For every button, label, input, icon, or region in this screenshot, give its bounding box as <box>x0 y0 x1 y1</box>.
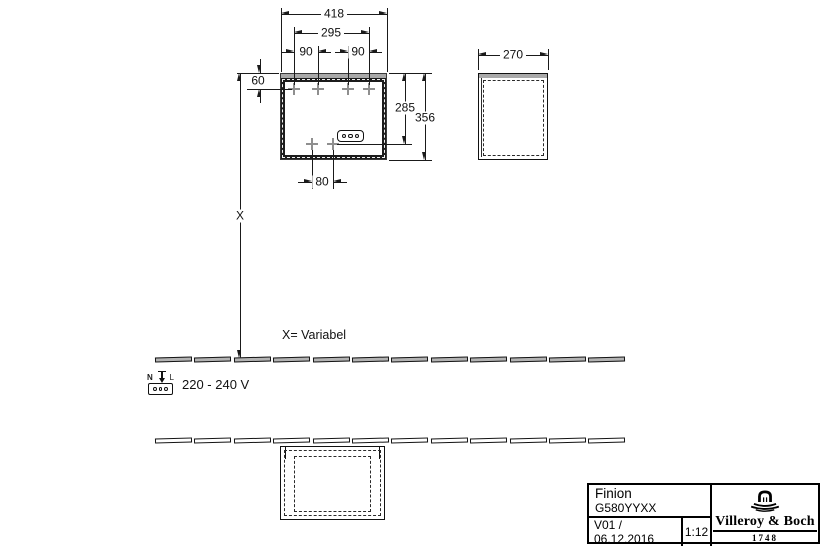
variable-note: X= Variabel <box>282 328 346 342</box>
dim-arrow <box>286 49 294 53</box>
ext-line <box>281 8 282 72</box>
dim-arrow <box>340 49 348 53</box>
ext-line <box>247 89 292 90</box>
brand-logo: Villeroy & Boch 1748 <box>712 485 818 546</box>
dim-arrow <box>333 179 341 183</box>
dim-arrow <box>294 30 302 34</box>
plan-hidden-outline-inner <box>294 456 371 512</box>
floor-tile <box>194 356 232 362</box>
title-block: Finion G580YYXX V01 / 06.12.2016 1:12 Vi… <box>587 483 820 544</box>
floor-tile <box>352 437 390 443</box>
dim-label-width-total: 418 <box>321 8 347 21</box>
dim-arrow <box>540 52 548 56</box>
floor-tile <box>273 356 311 362</box>
dim-label-bottom-hole-spacing: 80 <box>312 176 331 189</box>
voltage-label: 220 - 240 V <box>182 377 249 392</box>
floor-tile <box>549 356 587 362</box>
terminal-l-label: L <box>170 373 174 382</box>
cabinet-side-view <box>478 73 548 160</box>
article-number: G580YYXX <box>595 502 704 515</box>
floor-tile <box>509 356 547 362</box>
floor-tile <box>313 356 351 362</box>
floor-tile <box>431 437 469 443</box>
dim-arrow <box>257 65 261 73</box>
floor-tile <box>155 437 193 443</box>
dim-arrow <box>281 11 289 15</box>
floor-line-upper <box>155 357 628 362</box>
floor-tile <box>549 437 587 443</box>
title-block-bottom-row: V01 / 06.12.2016 1:12 <box>589 518 712 546</box>
dim-label-hole-span: 295 <box>318 27 344 40</box>
dim-arrow <box>361 30 369 34</box>
socket-outlet-icon <box>337 130 364 142</box>
floor-tile <box>588 356 626 362</box>
dim-arrow <box>369 49 377 53</box>
version-date: V01 / 06.12.2016 <box>589 518 681 546</box>
dim-arrow <box>237 73 241 81</box>
floor-tile <box>509 437 547 443</box>
floor-tile <box>431 356 469 362</box>
floor-tile <box>155 356 193 362</box>
floor-tile <box>313 437 351 443</box>
terminal-box-icon <box>148 383 173 395</box>
brand-name: Villeroy & Boch <box>713 514 816 532</box>
floor-tile <box>234 356 272 362</box>
drill-hole-cross <box>306 138 318 150</box>
dim-arrow <box>422 73 426 81</box>
ext-line <box>548 49 549 70</box>
floor-tile <box>470 437 508 443</box>
floor-tile <box>391 437 429 443</box>
product-name: Finion <box>595 486 704 502</box>
floor-line-lower <box>155 438 628 443</box>
dim-arrow <box>422 152 426 160</box>
brand-year: 1748 <box>752 533 778 543</box>
dim-arrow <box>257 89 261 97</box>
ext-line <box>337 144 412 145</box>
floor-tile <box>273 437 311 443</box>
floor-tile <box>470 356 508 362</box>
floor-tile <box>588 437 626 443</box>
technical-drawing-sheet: 418 295 90 90 60 285 356 270 80 X <box>0 0 821 546</box>
dim-label-mount-height: X <box>233 210 247 223</box>
dim-arrow <box>379 11 387 15</box>
terminal-n-label: N <box>147 373 153 382</box>
dim-arrow <box>402 136 406 144</box>
dim-arrow <box>402 73 406 81</box>
dim-label-top-offset: 60 <box>248 75 267 88</box>
dim-label-hole-spacing-right: 90 <box>348 46 367 59</box>
dim-label-height-total: 356 <box>412 112 438 125</box>
cabinet-top-panel <box>479 74 547 78</box>
dim-arrow <box>478 52 486 56</box>
cabinet-plan-view <box>280 446 385 520</box>
dim-label-depth: 270 <box>500 49 526 62</box>
dim-arrow <box>318 49 326 53</box>
floor-tile <box>194 437 232 443</box>
floor-tile <box>391 356 429 362</box>
floor-tile <box>352 356 390 362</box>
floor-tile <box>234 437 272 443</box>
ext-line <box>369 27 370 85</box>
ext-line <box>387 8 388 72</box>
power-terminal-icon: N L <box>147 371 177 399</box>
brand-fountain-icon <box>746 490 784 514</box>
side-hidden-outline <box>483 80 544 156</box>
ext-line <box>389 160 432 161</box>
dim-label-hole-spacing-left: 90 <box>296 46 315 59</box>
dim-arrow <box>304 179 312 183</box>
scale-value: 1:12 <box>681 518 710 546</box>
title-block-name-cell: Finion G580YYXX <box>589 485 712 518</box>
side-panel-line <box>481 78 482 157</box>
ext-line <box>294 27 295 85</box>
